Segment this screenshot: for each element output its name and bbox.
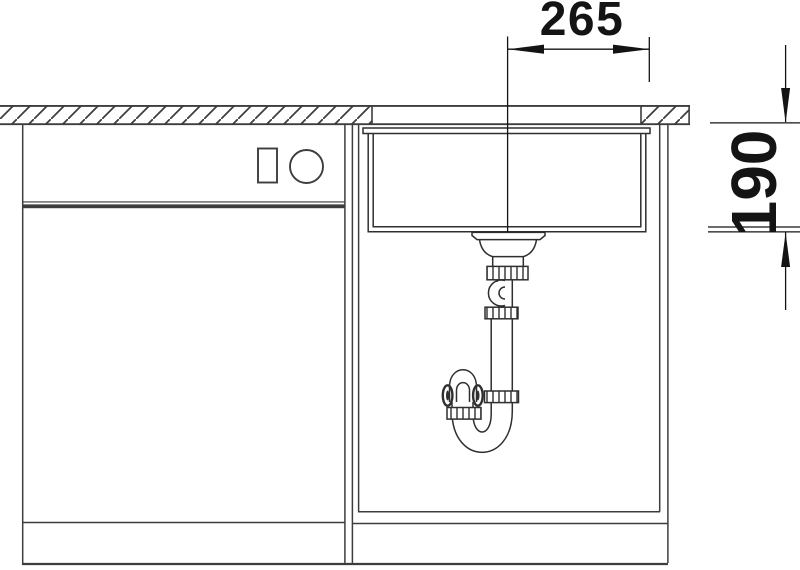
worktop-hatch-right	[641, 106, 689, 124]
base-cabinets	[22, 125, 668, 564]
hook-elbow-inner	[499, 287, 505, 299]
nut-riser	[447, 408, 481, 420]
strainer-tailpipe	[493, 257, 524, 267]
strainer-flange	[472, 232, 545, 239]
strainer-body	[480, 240, 537, 257]
installation-diagram: 265 190	[0, 0, 800, 570]
outlet-fitting-right-core	[476, 391, 479, 401]
control-rectangle	[258, 149, 277, 183]
arrow-left-icon	[508, 45, 544, 54]
riser-loop-inner	[457, 383, 470, 402]
control-knob	[290, 150, 323, 183]
nut-downpipe	[485, 391, 519, 403]
drain-assembly	[443, 232, 545, 452]
worktop-hatch-left	[0, 106, 372, 124]
sink-bowl	[363, 128, 650, 232]
sink-flange	[363, 128, 650, 134]
dimension-label-190: 190	[721, 103, 787, 263]
outlet-fitting-left-core	[446, 391, 449, 401]
hook-elbow-outer	[488, 280, 505, 306]
drawer-gap-band	[22, 204, 345, 208]
nut-strainer	[487, 266, 528, 279]
dimension-label-265: 265	[509, 0, 655, 44]
cabinet-gap-lines	[345, 125, 353, 563]
worktop-cutout-edges	[372, 105, 689, 125]
nut-upper	[485, 307, 518, 319]
drawing-canvas	[0, 0, 800, 570]
worktop	[0, 105, 690, 125]
